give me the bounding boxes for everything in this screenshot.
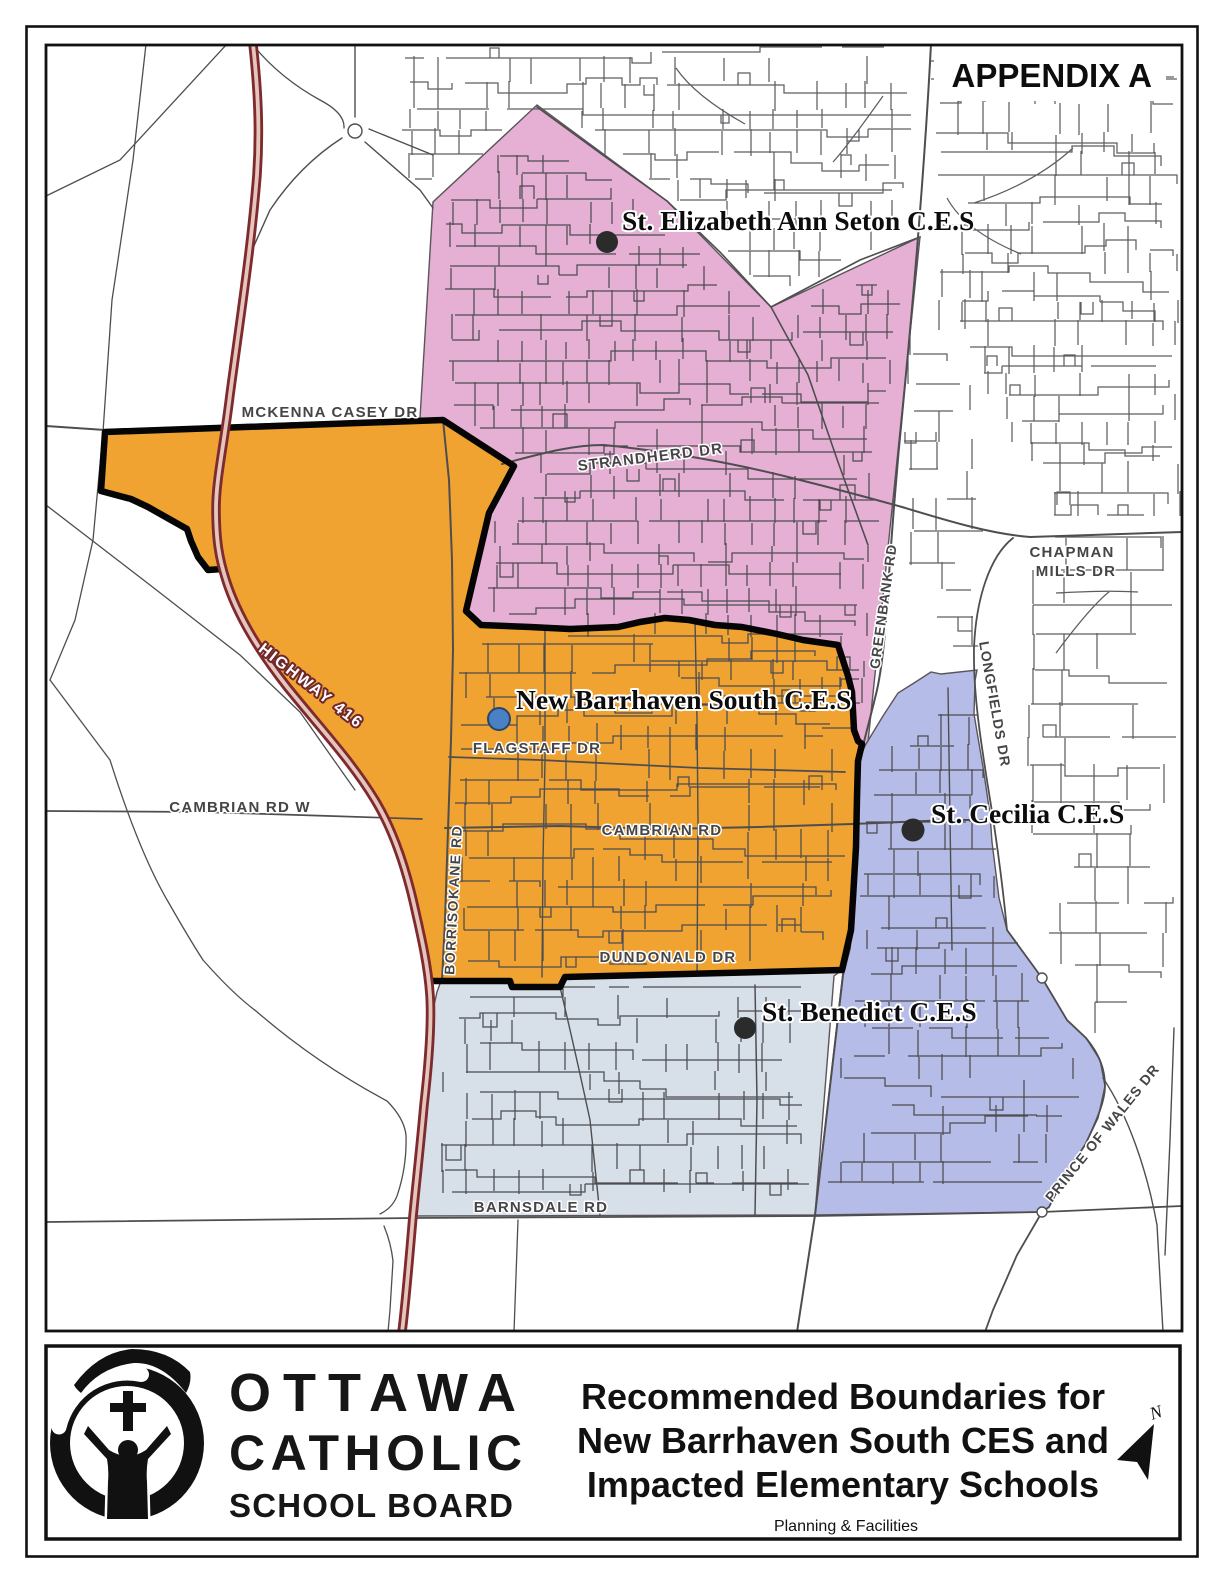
svg-text:New Barrhaven South CES and: New Barrhaven South CES and: [577, 1420, 1109, 1461]
svg-text:SCHOOL BOARD: SCHOOL BOARD: [229, 1487, 514, 1524]
svg-text:FLAGSTAFF DR: FLAGSTAFF DR: [473, 740, 601, 757]
svg-text:CATHOLIC: CATHOLIC: [229, 1425, 528, 1481]
svg-text:CAMBRIAN RD: CAMBRIAN RD: [602, 822, 723, 839]
svg-text:Impacted Elementary Schools: Impacted Elementary Schools: [587, 1464, 1099, 1505]
svg-text:New Barrhaven South C.E.S: New Barrhaven South C.E.S: [516, 684, 851, 715]
svg-text:OTTAWA: OTTAWA: [229, 1363, 528, 1423]
svg-text:APPENDIX A: APPENDIX A: [952, 57, 1152, 94]
svg-text:Recommended Boundaries for: Recommended Boundaries for: [581, 1376, 1105, 1417]
svg-text:Planning & Facilities: Planning & Facilities: [774, 1518, 918, 1535]
svg-text:MCKENNA CASEY DR: MCKENNA CASEY DR: [242, 404, 419, 421]
svg-text:BARNSDALE RD: BARNSDALE RD: [474, 1199, 608, 1216]
svg-text:St. Cecilia C.E.S: St. Cecilia C.E.S: [931, 798, 1124, 829]
svg-text:St. Elizabeth Ann Seton C.E.S: St. Elizabeth Ann Seton C.E.S: [622, 205, 974, 236]
svg-text:MILLS DR: MILLS DR: [1036, 563, 1116, 580]
svg-text:CAMBRIAN RD W: CAMBRIAN RD W: [169, 799, 310, 816]
svg-text:DUNDONALD DR: DUNDONALD DR: [600, 949, 737, 966]
svg-text:St. Benedict C.E.S: St. Benedict C.E.S: [762, 996, 977, 1027]
svg-text:CHAPMAN: CHAPMAN: [1029, 544, 1114, 561]
